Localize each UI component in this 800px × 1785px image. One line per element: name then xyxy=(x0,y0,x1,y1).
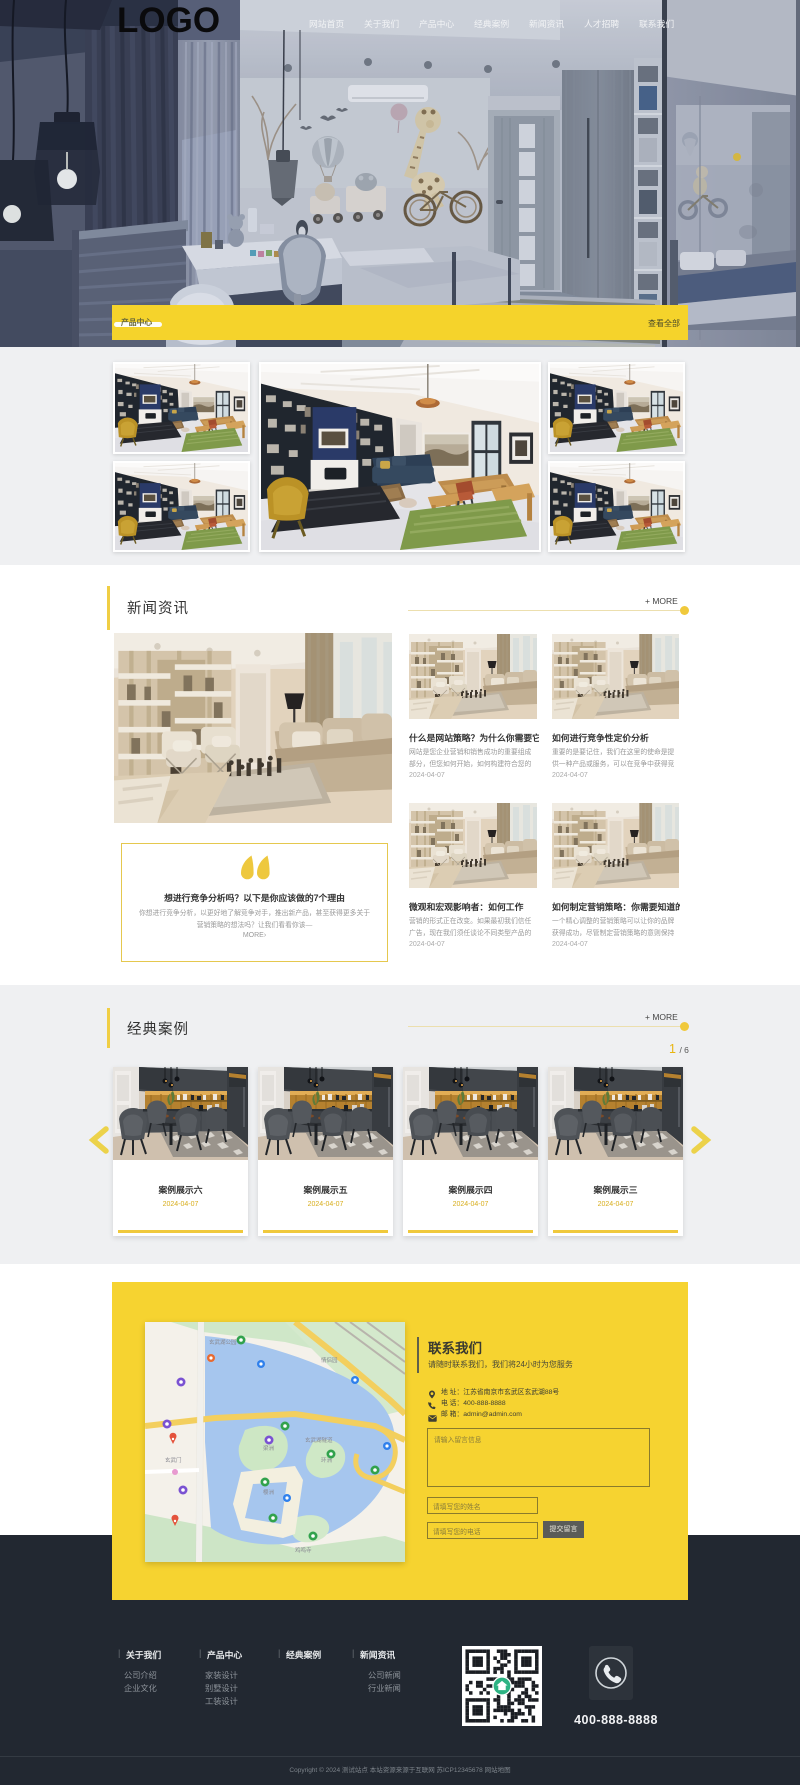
svg-text:梁洲: 梁洲 xyxy=(263,1444,275,1452)
svg-text:玄武湖隧道: 玄武湖隧道 xyxy=(305,1436,333,1444)
svg-text:玄武湖公园: 玄武湖公园 xyxy=(209,1338,237,1346)
svg-text:樱洲: 樱洲 xyxy=(263,1488,275,1496)
svg-text:鸡鸣寺: 鸡鸣寺 xyxy=(295,1546,312,1554)
svg-text:情侣园: 情侣园 xyxy=(321,1356,338,1364)
svg-text:玄武门: 玄武门 xyxy=(165,1456,182,1464)
